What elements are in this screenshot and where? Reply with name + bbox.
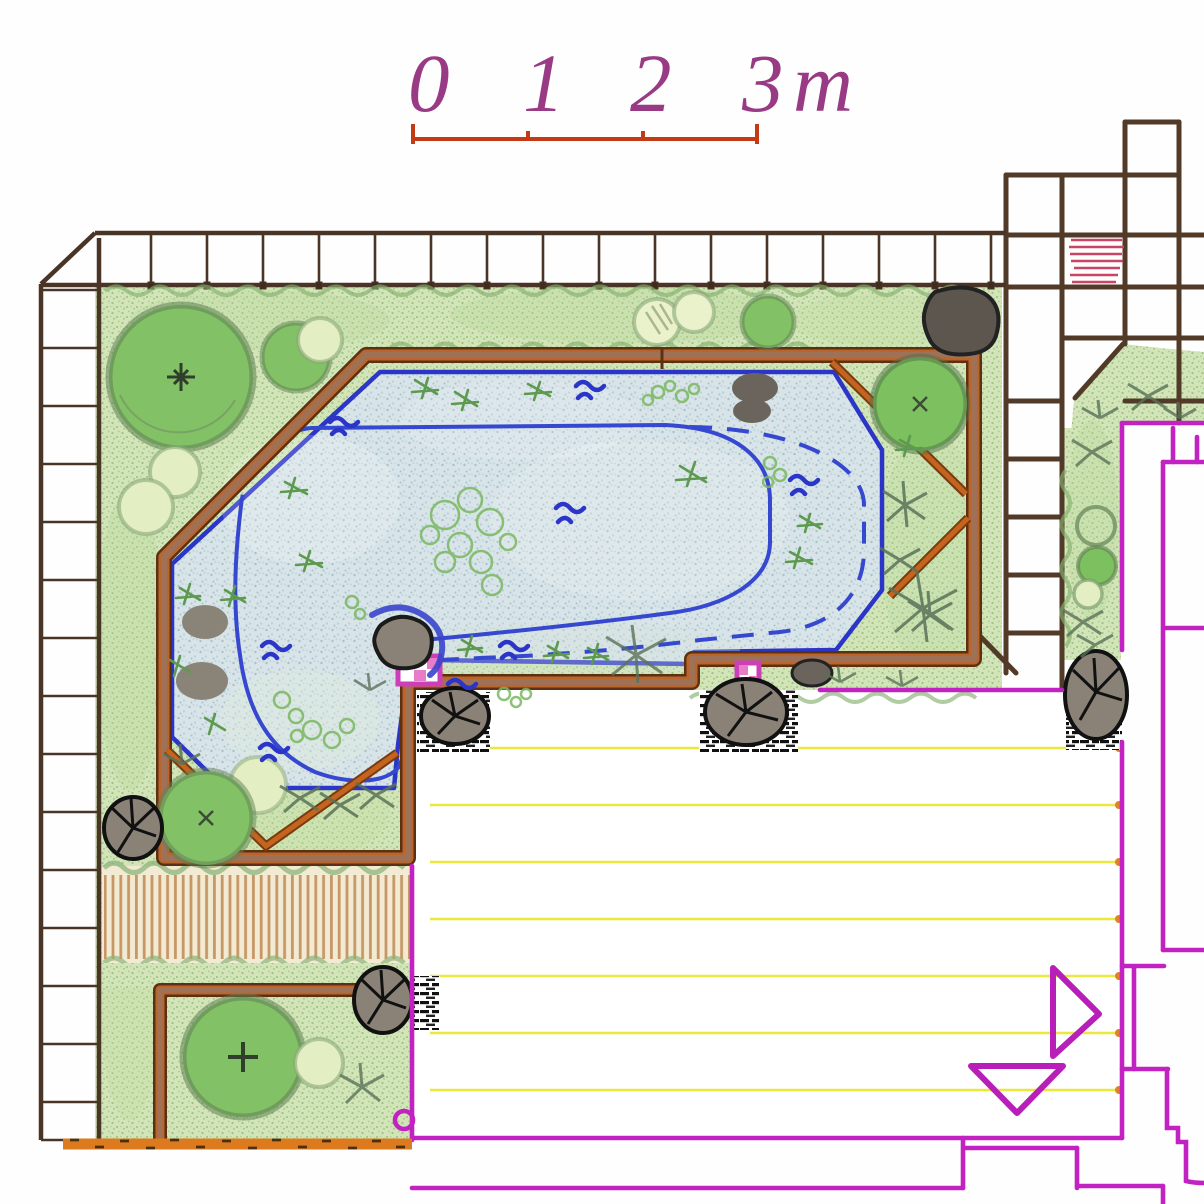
svg-text:2: 2: [630, 37, 672, 129]
svg-text:0: 0: [408, 37, 450, 129]
svg-text:3: 3: [741, 37, 784, 129]
svg-text:1: 1: [523, 37, 565, 129]
svg-text:m: m: [793, 37, 853, 129]
